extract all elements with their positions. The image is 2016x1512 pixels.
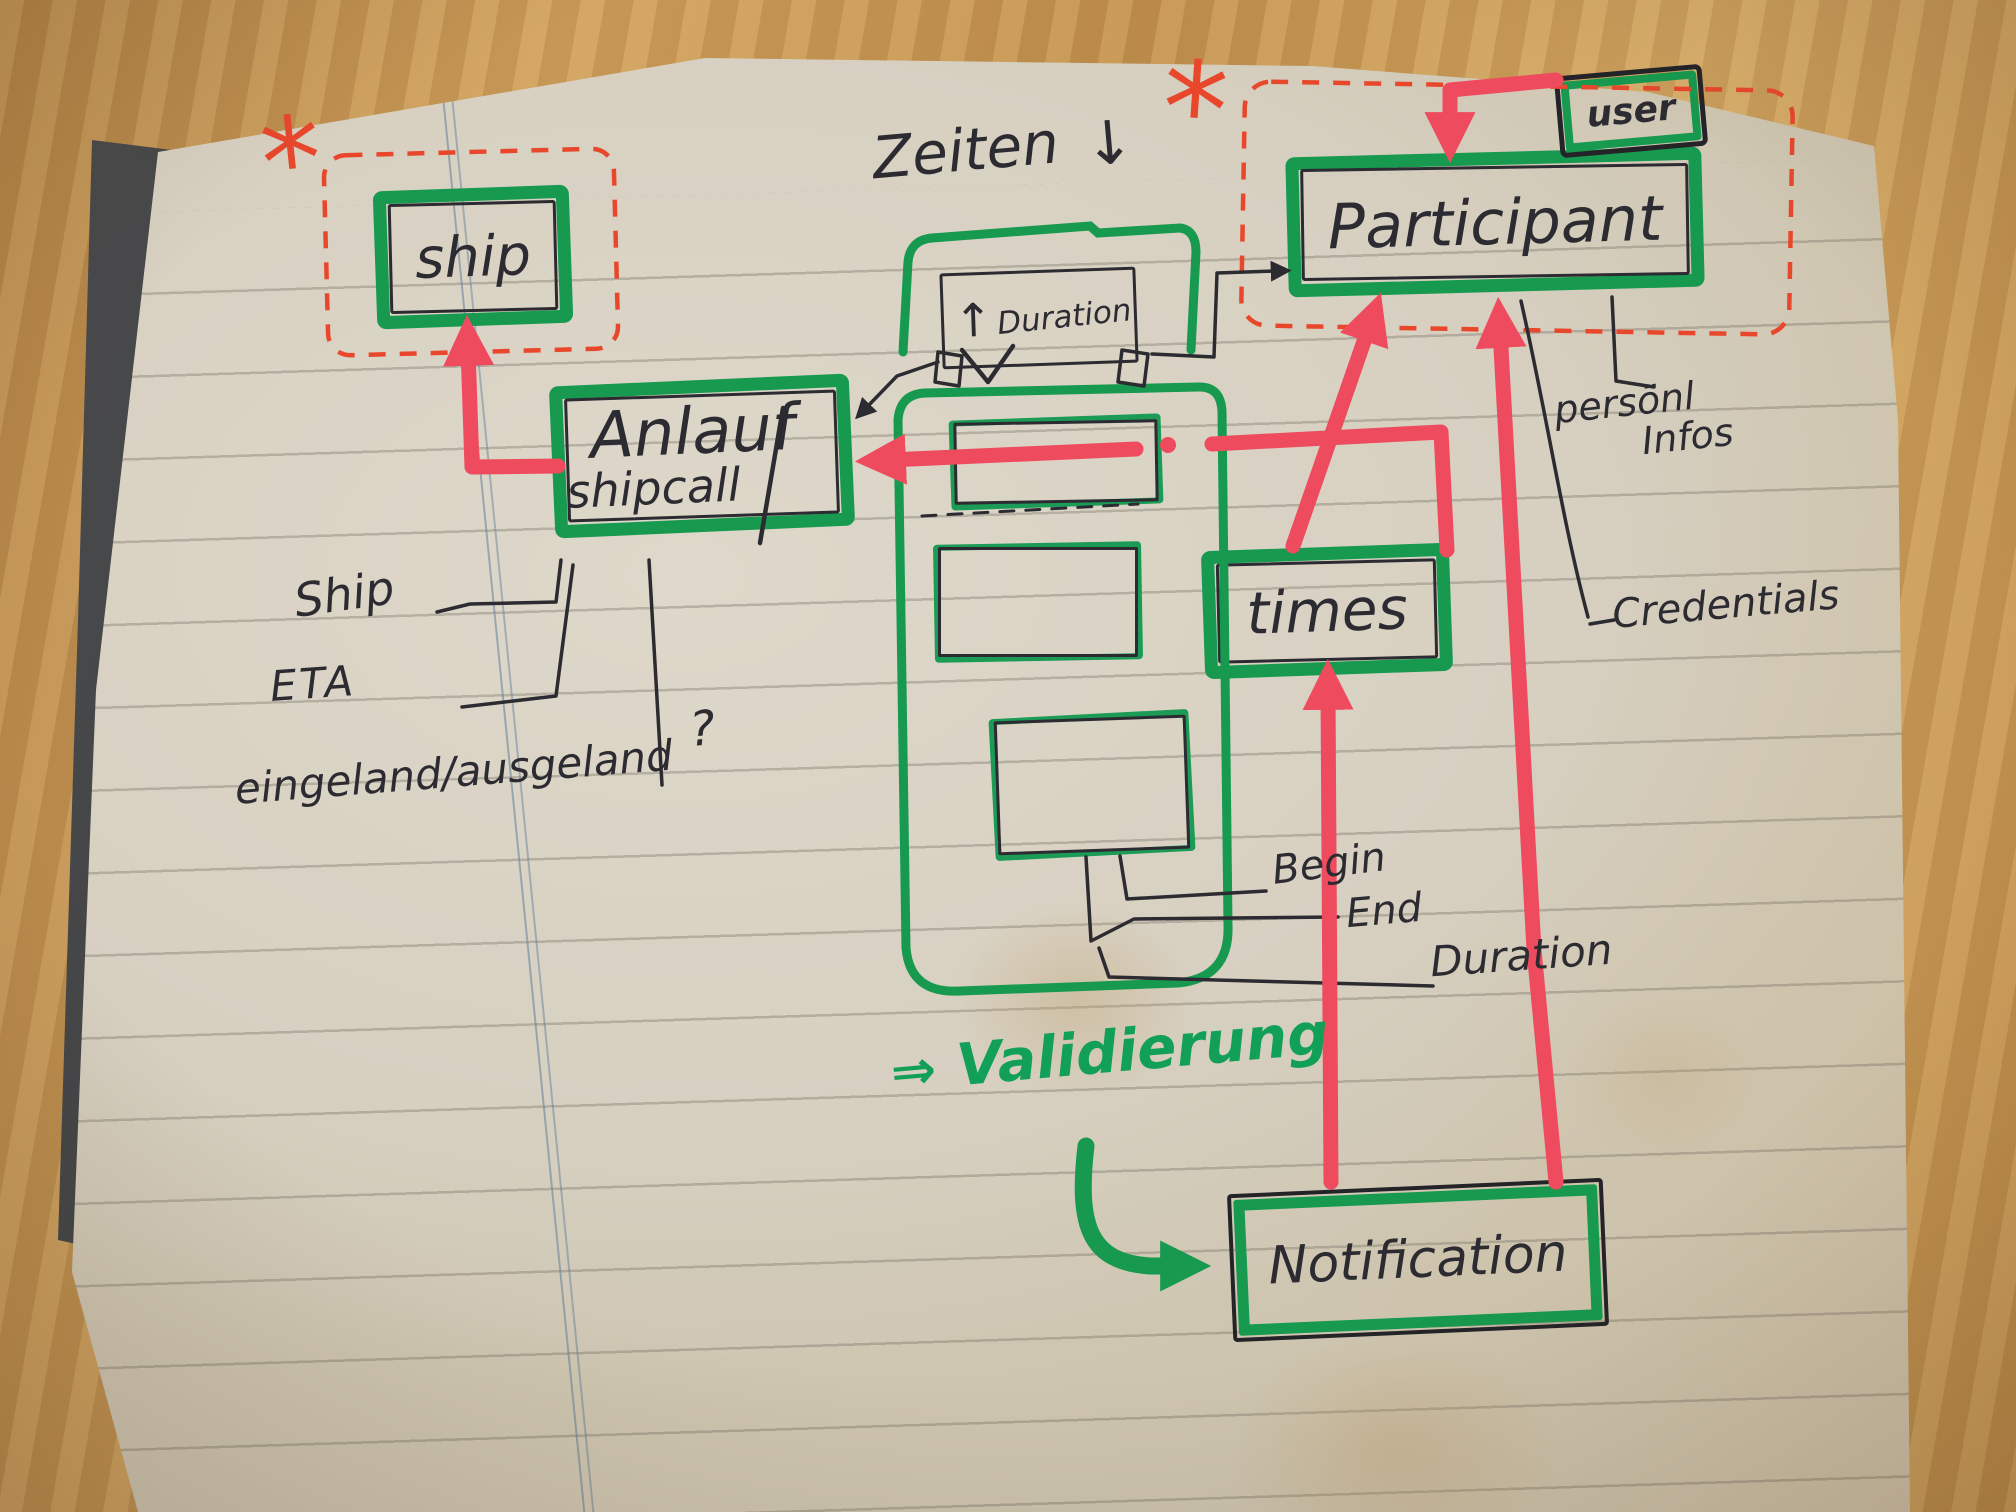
double-arrow-icon: ⇒ — [888, 1037, 939, 1104]
attr-begin: Begin — [1270, 836, 1388, 892]
attr-end: End — [1344, 887, 1423, 935]
note-validation-text: Validierung — [954, 999, 1331, 1099]
attr-personal: persönl Infos — [1552, 373, 1735, 471]
note-zeiten: Zeiten ↓ — [870, 105, 1137, 191]
attr-duration: Duration — [1429, 928, 1614, 985]
attr-credentials: Credentials — [1611, 574, 1841, 636]
down-arrow-icon: ↓ — [1081, 107, 1137, 181]
attr-eta: ETA — [269, 659, 358, 709]
attr-inout: eingeland/ausgeland ? — [233, 725, 719, 813]
attr-inout-text: eingeland/ausgeland — [233, 731, 674, 814]
note-zeiten-text: Zeiten — [869, 108, 1061, 192]
note-validation: ⇒ Validierung — [888, 1003, 1331, 1102]
attr-ship: Ship — [291, 563, 397, 625]
labels-layer: * * Zeiten ↓ Ship ETA eingeland/ausgelan… — [0, 0, 2016, 1512]
asterisk-icon: * — [256, 97, 329, 229]
asterisk-icon: * — [1157, 40, 1231, 181]
notebook-photo: ship Anlauf shipcall ↑ Duration Particip… — [0, 0, 2016, 1512]
attr-inout-question: ? — [687, 700, 717, 758]
